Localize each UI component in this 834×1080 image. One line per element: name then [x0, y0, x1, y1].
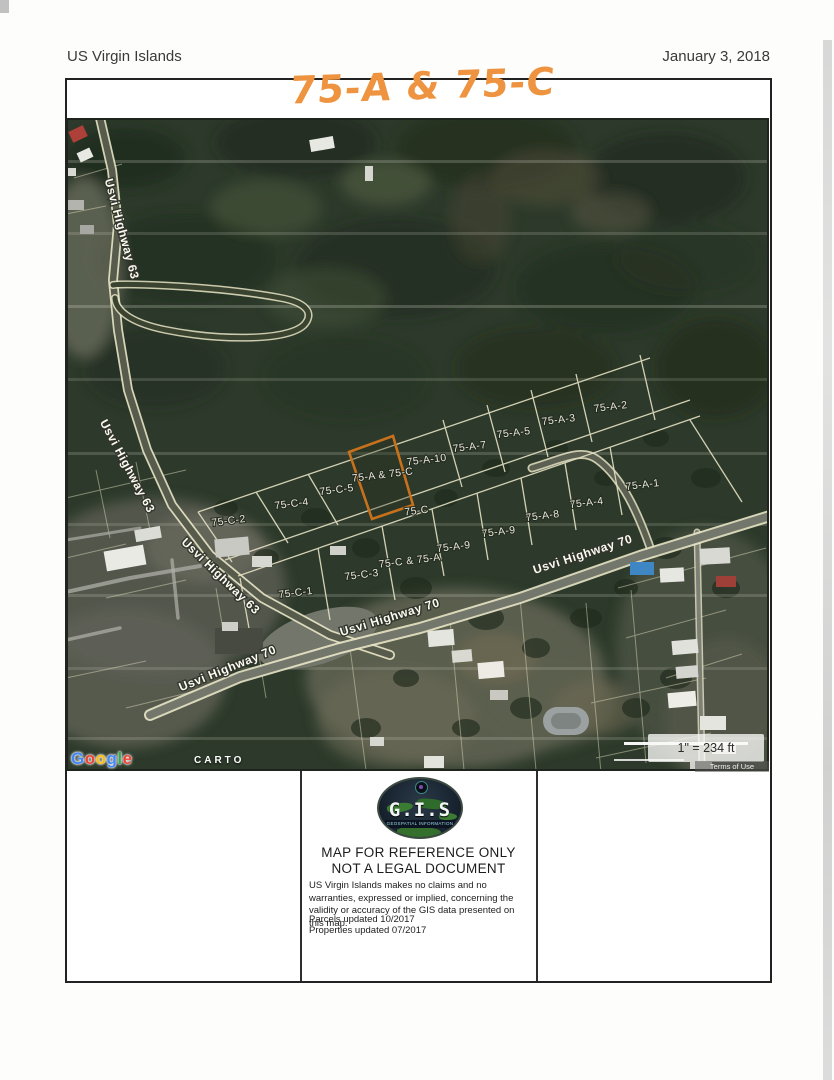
scan-edge-artifact [823, 40, 832, 1080]
handwritten-annotation: 75-A & 75-C [288, 59, 557, 112]
page-date: January 3, 2018 [600, 48, 770, 65]
gis-eye-icon [415, 781, 428, 794]
gis-logo-subtitle: GEOSPATIAL INFORMATION SYSTEMS [385, 820, 455, 828]
google-letter: g [107, 749, 118, 768]
properties-updated: Properties updated 07/2017 [309, 925, 426, 936]
reference-only-line: MAP FOR REFERENCE ONLY [301, 845, 536, 860]
scanned-page: US Virgin Islands January 3, 2018 75-A &… [0, 0, 834, 1080]
terms-of-use: Terms of Use [695, 761, 769, 772]
map-canvas: 75-A-275-A-375-A-575-A-775-A-1075-A & 75… [66, 118, 769, 771]
not-legal-line: NOT A LEGAL DOCUMENT [301, 861, 536, 876]
google-letter: e [123, 749, 133, 768]
google-logo: Google [71, 749, 133, 769]
google-letter: o [85, 749, 96, 768]
page-title: US Virgin Islands [67, 48, 182, 65]
footer-divider-left [300, 771, 302, 981]
google-letter: G [71, 749, 85, 768]
scan-corner-artifact [0, 0, 9, 13]
carto-logo: CARTO [194, 755, 244, 766]
parcels-updated: Parcels updated 10/2017 [309, 914, 415, 925]
satellite-map: 75-A-275-A-375-A-575-A-775-A-1075-A & 75… [66, 118, 769, 771]
footer-divider-right [536, 771, 538, 981]
gis-logo-title: G.I.S [379, 799, 461, 821]
gis-logo: G.I.S GEOSPATIAL INFORMATION SYSTEMS [377, 777, 463, 839]
scale-bar: 1" = 234 ft [648, 734, 764, 762]
google-letter: o [96, 749, 107, 768]
